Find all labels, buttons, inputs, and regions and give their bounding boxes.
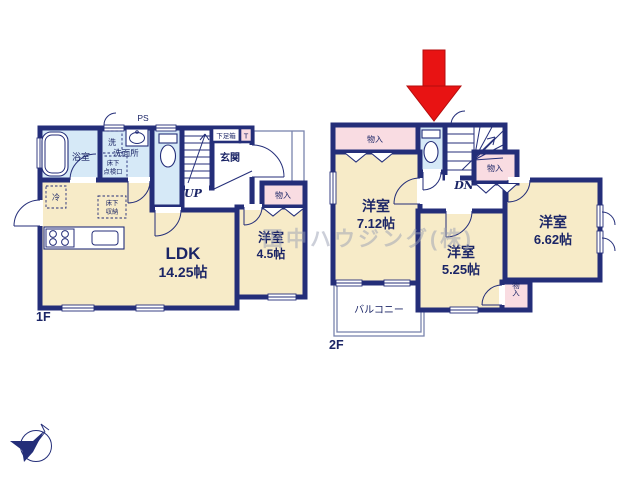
washer-label: 洗 (108, 137, 116, 147)
ldk-name: LDK (166, 244, 202, 263)
kitchen-counter (44, 227, 124, 249)
bedroom662-name: 洋室 (539, 214, 567, 230)
floor-storage-label-2: 収納 (106, 207, 119, 216)
bedroom662-size: 6.62帖 (534, 232, 572, 247)
closet-right-label: 物入 (487, 163, 503, 173)
bedroom525-size: 5.25帖 (442, 262, 480, 277)
closet-1f-label: 物入 (275, 190, 291, 200)
floor-plan-image: PS 浴室 洗 洗面所 床下 点検口 下足箱 T 玄関 UP 冷 床下 収納 L… (0, 0, 640, 480)
closet-top-label: 物入 (367, 134, 383, 144)
floor-2f-label: 2F (329, 338, 344, 352)
closet-bottom-label: 物入 (511, 280, 520, 297)
washbasin (126, 129, 148, 146)
fridge-label: 冷 (52, 192, 60, 202)
floor-plan-svg: PS 浴室 洗 洗面所 床下 点検口 下足箱 T 玄関 UP 冷 床下 収納 L… (0, 0, 640, 480)
toilet-fixture-1f (159, 134, 177, 167)
floor-1f-label: 1F (36, 310, 51, 324)
bathtub (42, 132, 68, 176)
watermark-text: 田中ハウジング(株) (262, 227, 474, 251)
ps-label: PS (137, 113, 149, 123)
balcony-label: バルコニー (354, 304, 404, 316)
inspection-label-2: 点検口 (104, 167, 123, 176)
room-bedroom-525 (418, 211, 505, 310)
shoe-box-label: 下足箱 (216, 131, 236, 140)
bedroom712-name: 洋室 (362, 198, 390, 214)
ldk-size: 14.25帖 (158, 264, 207, 280)
up-label: UP (184, 187, 203, 200)
dn-label: DN (453, 179, 475, 192)
room-bedroom-662 (505, 180, 600, 280)
bath-label: 浴室 (72, 151, 90, 162)
t-box-label: T (244, 132, 249, 141)
floor-2f: 物入 物入 物入 DN 洋室 7.12帖 洋室 5.25帖 洋室 6.62帖 バ… (329, 50, 615, 352)
floor-storage-label-1: 床下 (106, 198, 119, 207)
toilet-fixture-2f (422, 130, 440, 163)
entrance-label: 玄関 (220, 151, 240, 164)
washroom-label: 洗面所 (113, 148, 139, 158)
floor-1f: PS 浴室 洗 洗面所 床下 点検口 下足箱 T 玄関 UP 冷 床下 収納 L… (14, 113, 305, 324)
inspection-label-1: 床下 (107, 158, 120, 167)
red-down-arrow (407, 50, 461, 121)
compass-icon (10, 424, 52, 462)
